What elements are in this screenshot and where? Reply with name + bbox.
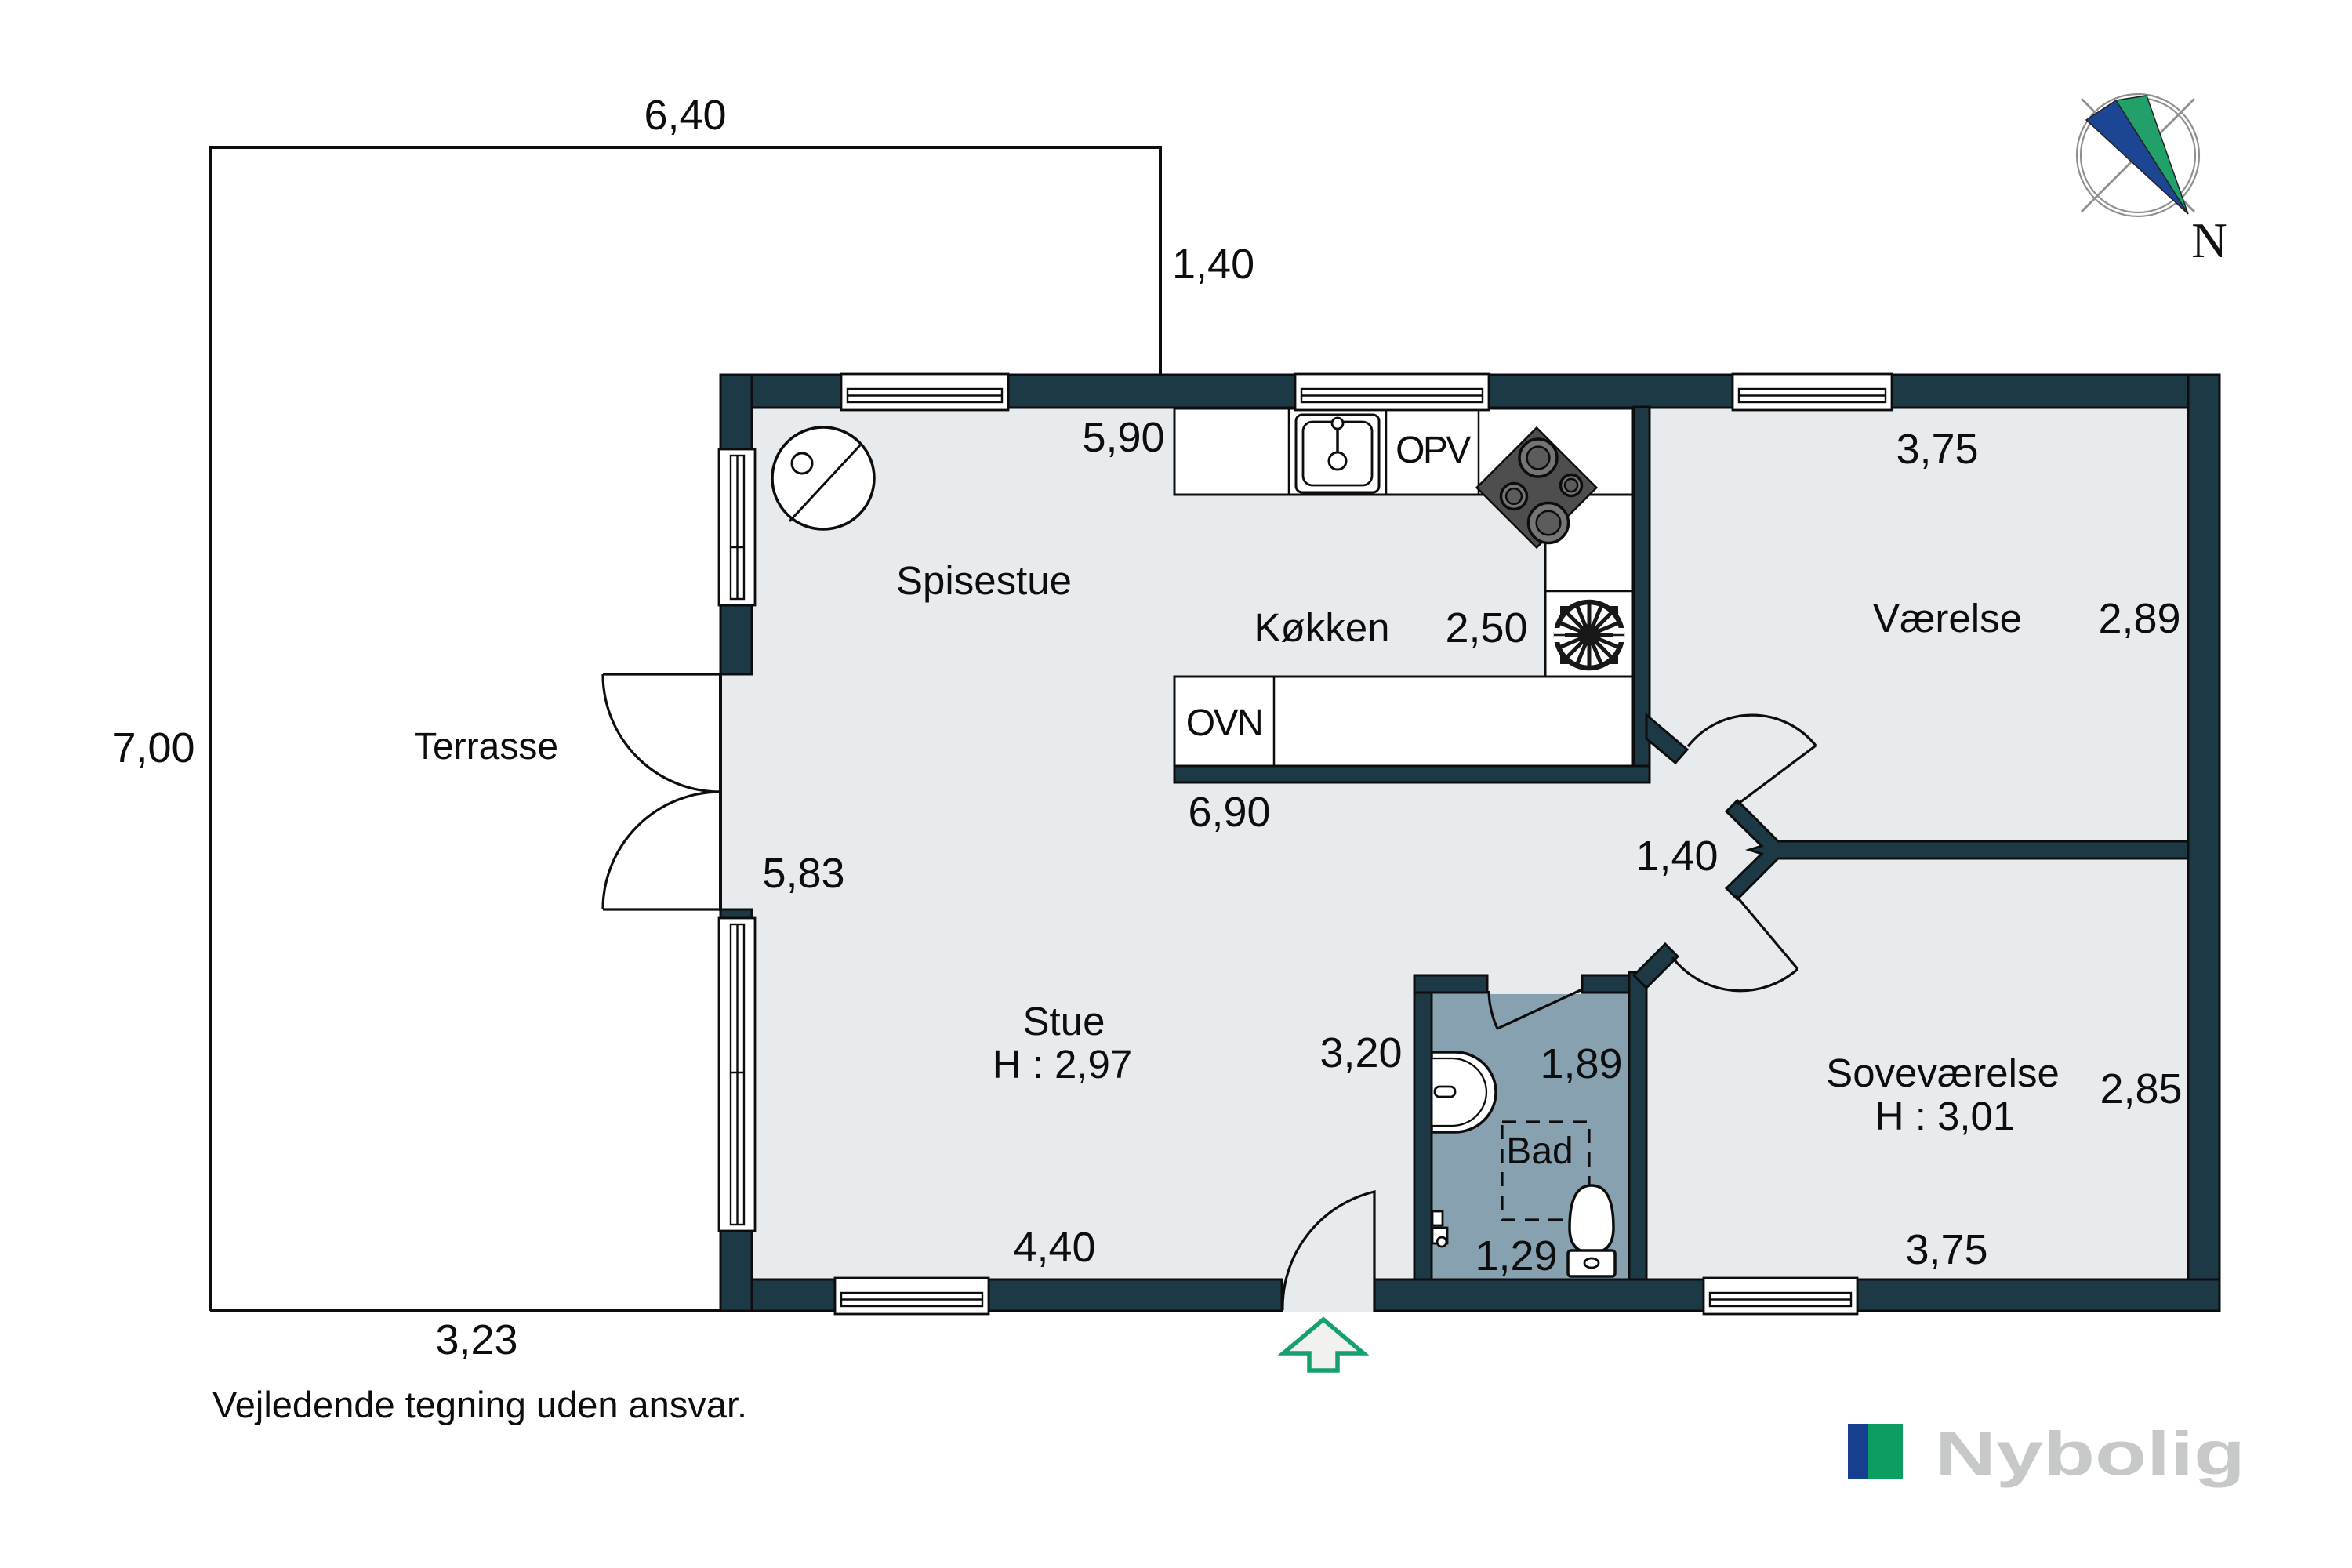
svg-text:5,83: 5,83 [762, 850, 844, 897]
svg-text:1,29: 1,29 [1475, 1232, 1557, 1279]
svg-text:6,40: 6,40 [644, 92, 726, 139]
svg-text:Terrasse: Terrasse [414, 726, 558, 768]
svg-text:2,50: 2,50 [1445, 604, 1527, 652]
svg-text:3,75: 3,75 [1905, 1226, 1987, 1273]
svg-text:Soveværelse: Soveværelse [1826, 1051, 2060, 1095]
svg-text:1,40: 1,40 [1635, 833, 1718, 880]
svg-text:6,90: 6,90 [1188, 789, 1270, 836]
svg-text:H : 3,01: H : 3,01 [1875, 1094, 2016, 1138]
svg-text:Nybolig: Nybolig [1935, 1418, 2245, 1488]
svg-text:5,90: 5,90 [1082, 414, 1164, 461]
svg-text:4,40: 4,40 [1013, 1224, 1095, 1271]
svg-text:OVN: OVN [1186, 702, 1262, 744]
svg-text:N: N [2191, 213, 2227, 268]
svg-text:1,40: 1,40 [1172, 241, 1254, 288]
svg-text:H : 2,97: H : 2,97 [993, 1042, 1133, 1087]
svg-text:2,89: 2,89 [2098, 595, 2180, 642]
svg-text:Værelse: Værelse [1873, 596, 2022, 641]
svg-text:3,75: 3,75 [1896, 426, 1978, 473]
svg-text:7,00: 7,00 [112, 724, 194, 771]
svg-text:Vejledende tegning uden ansvar: Vejledende tegning uden ansvar. [212, 1384, 747, 1425]
svg-text:2,85: 2,85 [2100, 1065, 2182, 1112]
svg-text:3,23: 3,23 [435, 1316, 517, 1363]
svg-text:3,20: 3,20 [1319, 1029, 1402, 1076]
svg-text:Køkken: Køkken [1254, 605, 1390, 650]
svg-text:Stue: Stue [1023, 999, 1105, 1044]
svg-text:Bad: Bad [1506, 1131, 1573, 1172]
svg-text:Spisestue: Spisestue [896, 558, 1072, 603]
svg-text:OPV: OPV [1396, 430, 1471, 471]
svg-text:1,89: 1,89 [1540, 1040, 1622, 1087]
